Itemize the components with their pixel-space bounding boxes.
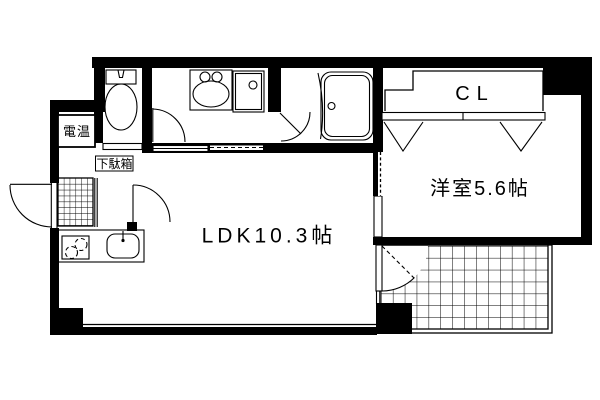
bath-door-leaf (280, 113, 301, 134)
bathtub-drain (328, 103, 335, 110)
closet-door-swing-right (500, 122, 542, 151)
entrance-door-arc (10, 185, 52, 227)
floor-plan: LDK10.3帖 洋室5.6帖 CL 電温 下駄箱 (0, 0, 600, 400)
closet-door-swing-left (384, 122, 423, 151)
closet-label: CL (455, 83, 495, 105)
vanity-counter (190, 70, 232, 110)
western-room-label: 洋室5.6帖 (430, 177, 530, 200)
shoe-cabinet-label: 下駄箱 (96, 156, 132, 171)
toilet-flush (118, 70, 124, 78)
hall-door-arc (133, 185, 170, 222)
ldk-label: LDK10.3帖 (202, 225, 337, 248)
bath-door-arc (281, 112, 310, 141)
water-heater-label: 電温 (63, 124, 91, 139)
partition-fixed-panel (374, 196, 382, 237)
floor-plan-drawing: LDK10.3帖 洋室5.6帖 CL 電温 下駄箱 (0, 0, 600, 400)
washer-pan (233, 71, 264, 112)
toilet (105, 70, 137, 130)
hall-door (133, 185, 170, 222)
bathtub (321, 72, 373, 140)
washer-drain (249, 81, 257, 89)
balcony-door-panel (376, 245, 382, 291)
kitchen-counter (57, 230, 144, 262)
bath-partition-curve (318, 73, 323, 139)
faucet-knob (212, 72, 222, 82)
vanity-basin (193, 81, 229, 107)
burner (75, 239, 87, 251)
toilet-doorway (103, 144, 142, 150)
toilet-bowl (105, 84, 137, 130)
faucet-knob (200, 72, 210, 82)
washroom (153, 70, 264, 142)
kitchen (57, 230, 144, 262)
balcony-corner-pillar (376, 303, 412, 334)
genkan-tile-grid (58, 178, 93, 226)
bathroom (280, 72, 373, 141)
washroom-door-arc (153, 109, 185, 142)
